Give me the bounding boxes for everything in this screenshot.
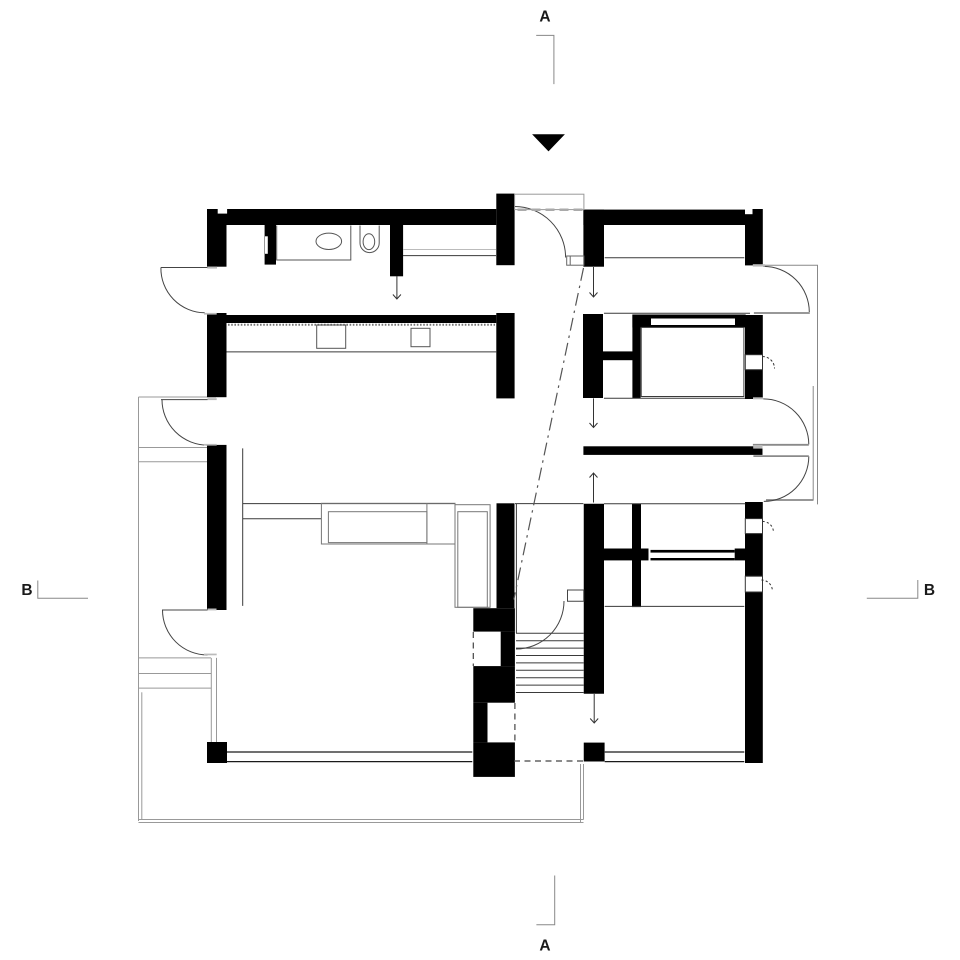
svg-text:B: B [21,582,32,599]
svg-text:B: B [924,582,935,599]
svg-text:A: A [539,9,550,26]
svg-text:A: A [539,938,550,955]
